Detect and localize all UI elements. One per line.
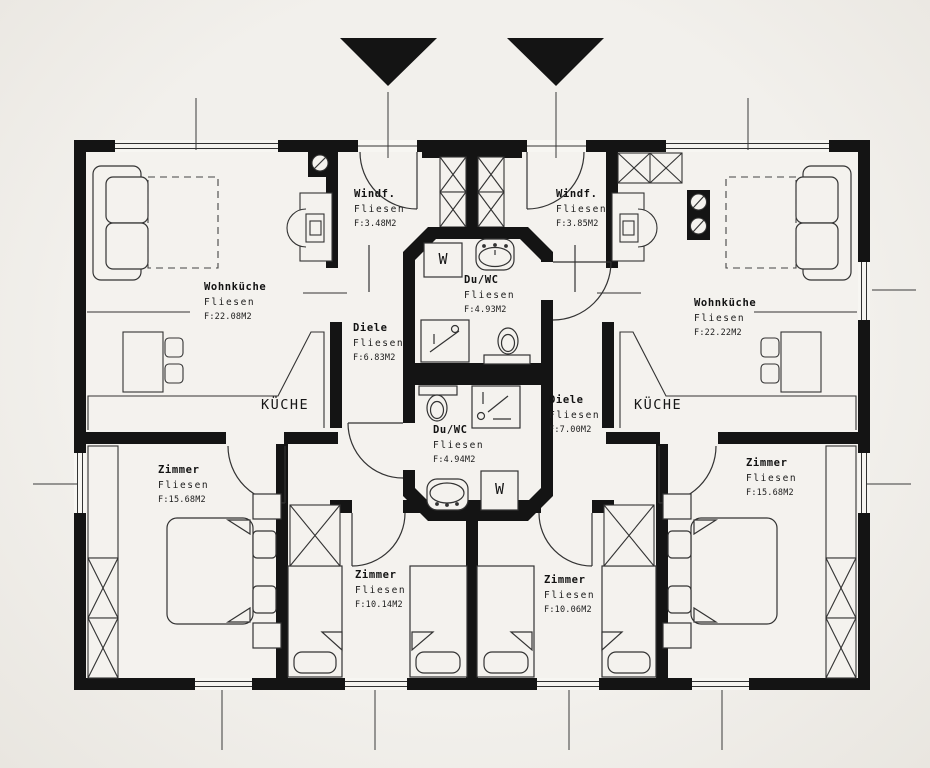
room-label-zimmer-right-small: Zimmer Fliesen F:10.06M2	[544, 573, 595, 618]
vent-block-right	[687, 190, 710, 240]
kitchen-label-left: KÜCHE	[261, 397, 309, 413]
floor-plan-page: Windf. Fliesen F:3.48M2 Windf. Fliesen F…	[0, 0, 930, 768]
right-wall-upper-window	[858, 262, 916, 320]
room-label-windfang-left: Windf. Fliesen F:3.48M2	[354, 187, 405, 232]
washing-machine-label-bottom: W	[481, 480, 518, 498]
room-label-wohnkueche-left: Wohnküche Fliesen F:22.08M2	[204, 280, 266, 325]
bathroom-top-door-opening	[540, 262, 554, 300]
sink-bottom	[427, 479, 468, 510]
shaft-box-right-wohnkueche	[618, 153, 682, 183]
vent-block-left	[308, 150, 333, 177]
kitchen-label-right: KÜCHE	[634, 397, 682, 413]
room-label-wohnkueche-right: Wohnküche Fliesen F:22.22M2	[694, 296, 756, 341]
floor-plan-drawing	[0, 0, 930, 768]
room-label-windfang-right: Windf. Fliesen F:3.85M2	[556, 187, 607, 232]
room-label-zimmer-left-small: Zimmer Fliesen F:10.14M2	[355, 568, 406, 613]
room-label-duwc-top: Du/WC Fliesen F:4.93M2	[464, 273, 515, 318]
washing-machine-label-top: W	[424, 250, 462, 268]
room-label-zimmer-left-large: Zimmer Fliesen F:15.68M2	[158, 463, 209, 508]
room-label-duwc-bottom: Du/WC Fliesen F:4.94M2	[433, 423, 484, 468]
room-label-zimmer-right-large: Zimmer Fliesen F:15.68M2	[746, 456, 797, 501]
shower-bottom	[472, 386, 520, 428]
room-label-diele-left: Diele Fliesen F:6.83M2	[353, 321, 404, 366]
bathroom-bottom-door-opening	[401, 423, 417, 470]
sink-top	[476, 239, 514, 270]
shower-top	[421, 320, 469, 362]
room-label-diele-right: Diele Fliesen F:7.00M2	[549, 393, 600, 438]
